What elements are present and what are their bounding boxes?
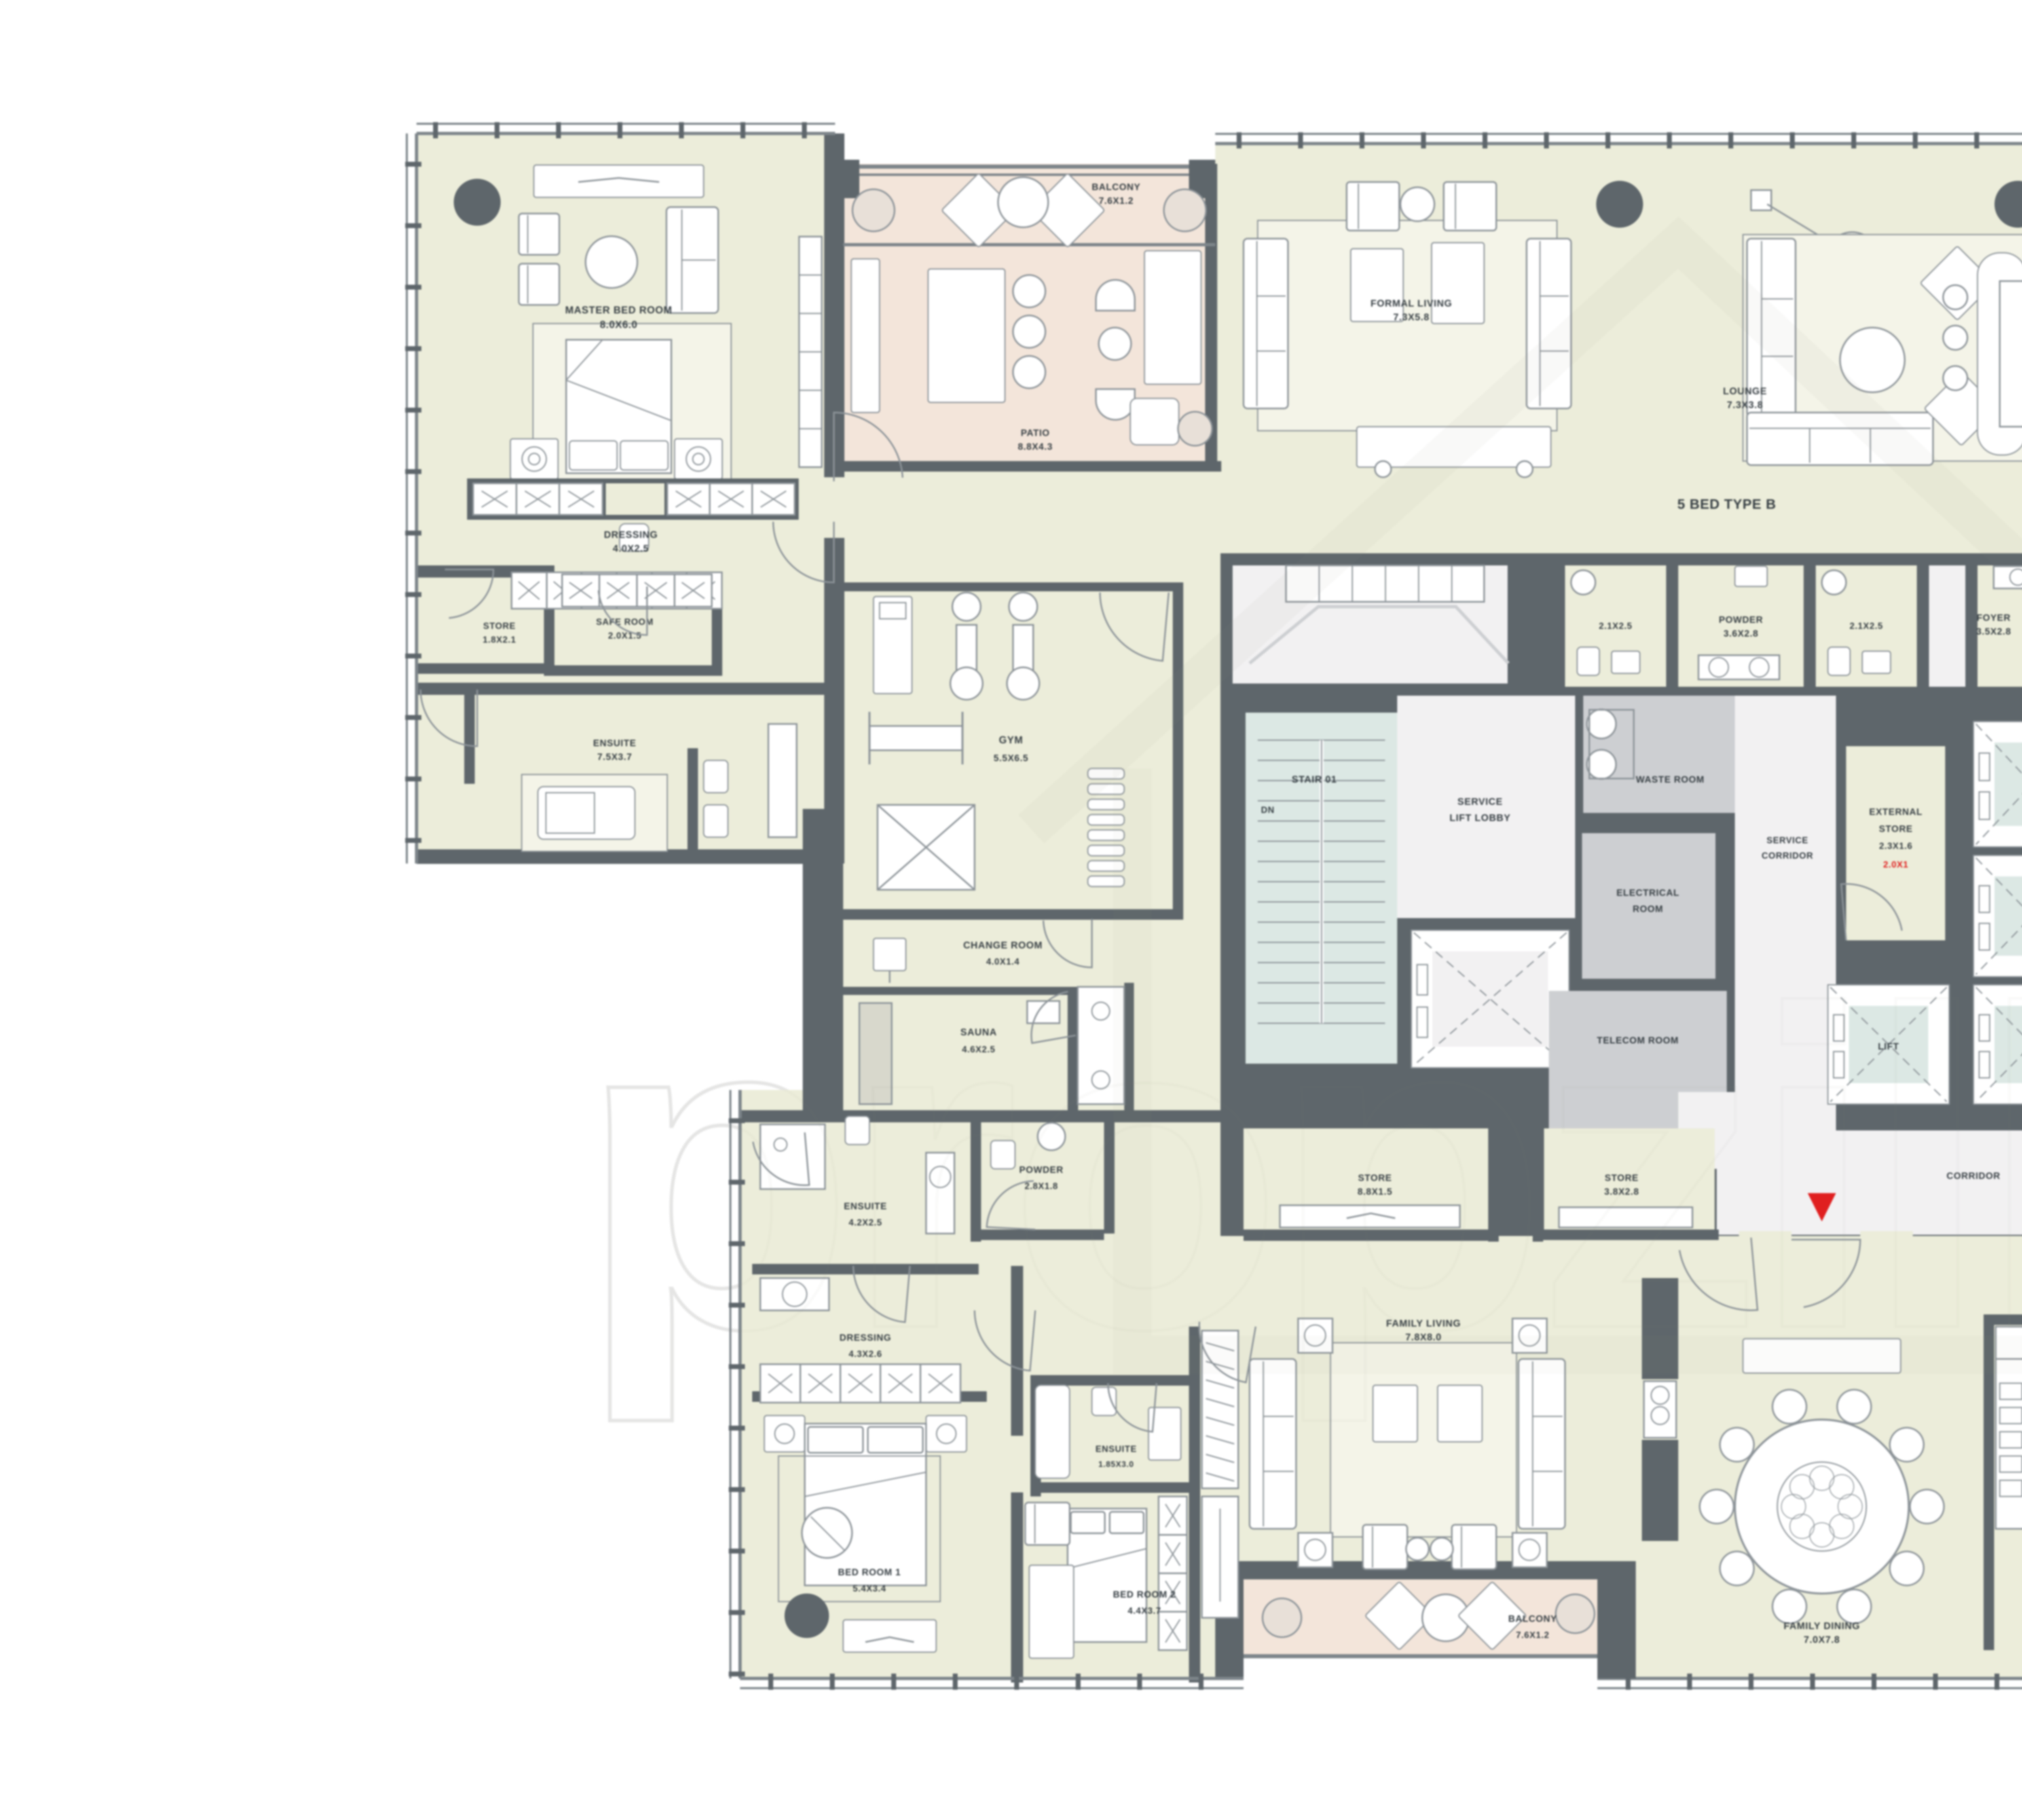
- svg-text:7.3X5.8: 7.3X5.8: [1393, 312, 1430, 323]
- svg-text:3.8X2.8: 3.8X2.8: [1604, 1186, 1639, 1197]
- svg-text:GYM: GYM: [999, 734, 1023, 746]
- svg-text:2.1X2.5: 2.1X2.5: [1599, 621, 1633, 631]
- svg-text:8.8X4.3: 8.8X4.3: [1018, 441, 1053, 452]
- svg-text:7.5X3.7: 7.5X3.7: [597, 751, 632, 762]
- svg-text:DN: DN: [1261, 805, 1275, 815]
- svg-text:DRESSING: DRESSING: [604, 529, 658, 540]
- svg-text:4.0X2.5: 4.0X2.5: [613, 543, 649, 554]
- svg-text:STORE: STORE: [483, 621, 516, 631]
- svg-text:LOUNGE: LOUNGE: [1723, 386, 1767, 397]
- svg-text:FAMILY LIVING: FAMILY LIVING: [1386, 1318, 1461, 1329]
- svg-text:5 BED TYPE B: 5 BED TYPE B: [1677, 497, 1776, 512]
- svg-text:SERVICE: SERVICE: [1457, 796, 1503, 807]
- svg-text:7.6X1.2: 7.6X1.2: [1516, 1630, 1550, 1640]
- svg-text:STORE: STORE: [1605, 1172, 1639, 1183]
- svg-text:EXTERNAL: EXTERNAL: [1869, 806, 1923, 817]
- svg-text:WASTE ROOM: WASTE ROOM: [1636, 774, 1705, 785]
- svg-text:BALCONY: BALCONY: [1092, 182, 1141, 192]
- svg-text:SAFE ROOM: SAFE ROOM: [596, 617, 654, 627]
- svg-text:BALCONY: BALCONY: [1508, 1613, 1557, 1624]
- svg-text:2.0X1.5: 2.0X1.5: [608, 631, 642, 641]
- svg-text:5.5X6.5: 5.5X6.5: [994, 753, 1028, 763]
- svg-text:STORE: STORE: [1358, 1172, 1392, 1183]
- svg-text:3.6X2.8: 3.6X2.8: [1724, 628, 1758, 639]
- svg-text:MASTER BED ROOM: MASTER BED ROOM: [565, 305, 673, 316]
- svg-text:3.5X2.8: 3.5X2.8: [1976, 626, 2011, 637]
- svg-text:8.0X6.0: 8.0X6.0: [600, 319, 637, 330]
- svg-text:POWDER: POWDER: [1719, 614, 1763, 625]
- svg-text:7.3X3.8: 7.3X3.8: [1727, 400, 1763, 411]
- svg-text:7.6X1.2: 7.6X1.2: [1099, 195, 1134, 206]
- svg-text:7.8X8.0: 7.8X8.0: [1405, 1332, 1442, 1343]
- svg-text:2.0X1: 2.0X1: [1883, 859, 1909, 870]
- svg-text:FORMAL LIVING: FORMAL LIVING: [1371, 298, 1452, 309]
- svg-text:ENSUITE: ENSUITE: [593, 738, 637, 748]
- svg-text:FAMILY DINING: FAMILY DINING: [1783, 1621, 1860, 1632]
- svg-text:STORE: STORE: [1879, 823, 1913, 834]
- svg-text:PATIO: PATIO: [1021, 427, 1050, 438]
- svg-text:SERVICE: SERVICE: [1766, 835, 1808, 845]
- svg-text:7.0X7.8: 7.0X7.8: [1804, 1634, 1840, 1645]
- svg-text:LIFT LOBBY: LIFT LOBBY: [1449, 813, 1510, 823]
- svg-text:4.4X3.7: 4.4X3.7: [1128, 1606, 1161, 1616]
- svg-text:BED ROOM 1: BED ROOM 1: [838, 1567, 901, 1577]
- svg-text:ROOM: ROOM: [1633, 904, 1663, 914]
- svg-text:1.85X3.0: 1.85X3.0: [1098, 1460, 1134, 1469]
- svg-text:2.1X2.5: 2.1X2.5: [1850, 621, 1883, 631]
- svg-text:2.3X1.6: 2.3X1.6: [1879, 841, 1913, 851]
- svg-text:ENSUITE: ENSUITE: [1096, 1444, 1137, 1454]
- svg-text:8.8X1.5: 8.8X1.5: [1358, 1186, 1392, 1197]
- svg-text:FOYER: FOYER: [1977, 612, 2011, 623]
- svg-text:CORRIDOR: CORRIDOR: [1762, 851, 1813, 861]
- svg-text:BED ROOM 2: BED ROOM 2: [1113, 1589, 1176, 1600]
- svg-text:5.4X3.4: 5.4X3.4: [853, 1583, 886, 1594]
- svg-text:ELECTRICAL: ELECTRICAL: [1616, 887, 1679, 898]
- svg-text:1.8X2.1: 1.8X2.1: [483, 635, 516, 645]
- svg-text:STAIR 01: STAIR 01: [1292, 774, 1337, 785]
